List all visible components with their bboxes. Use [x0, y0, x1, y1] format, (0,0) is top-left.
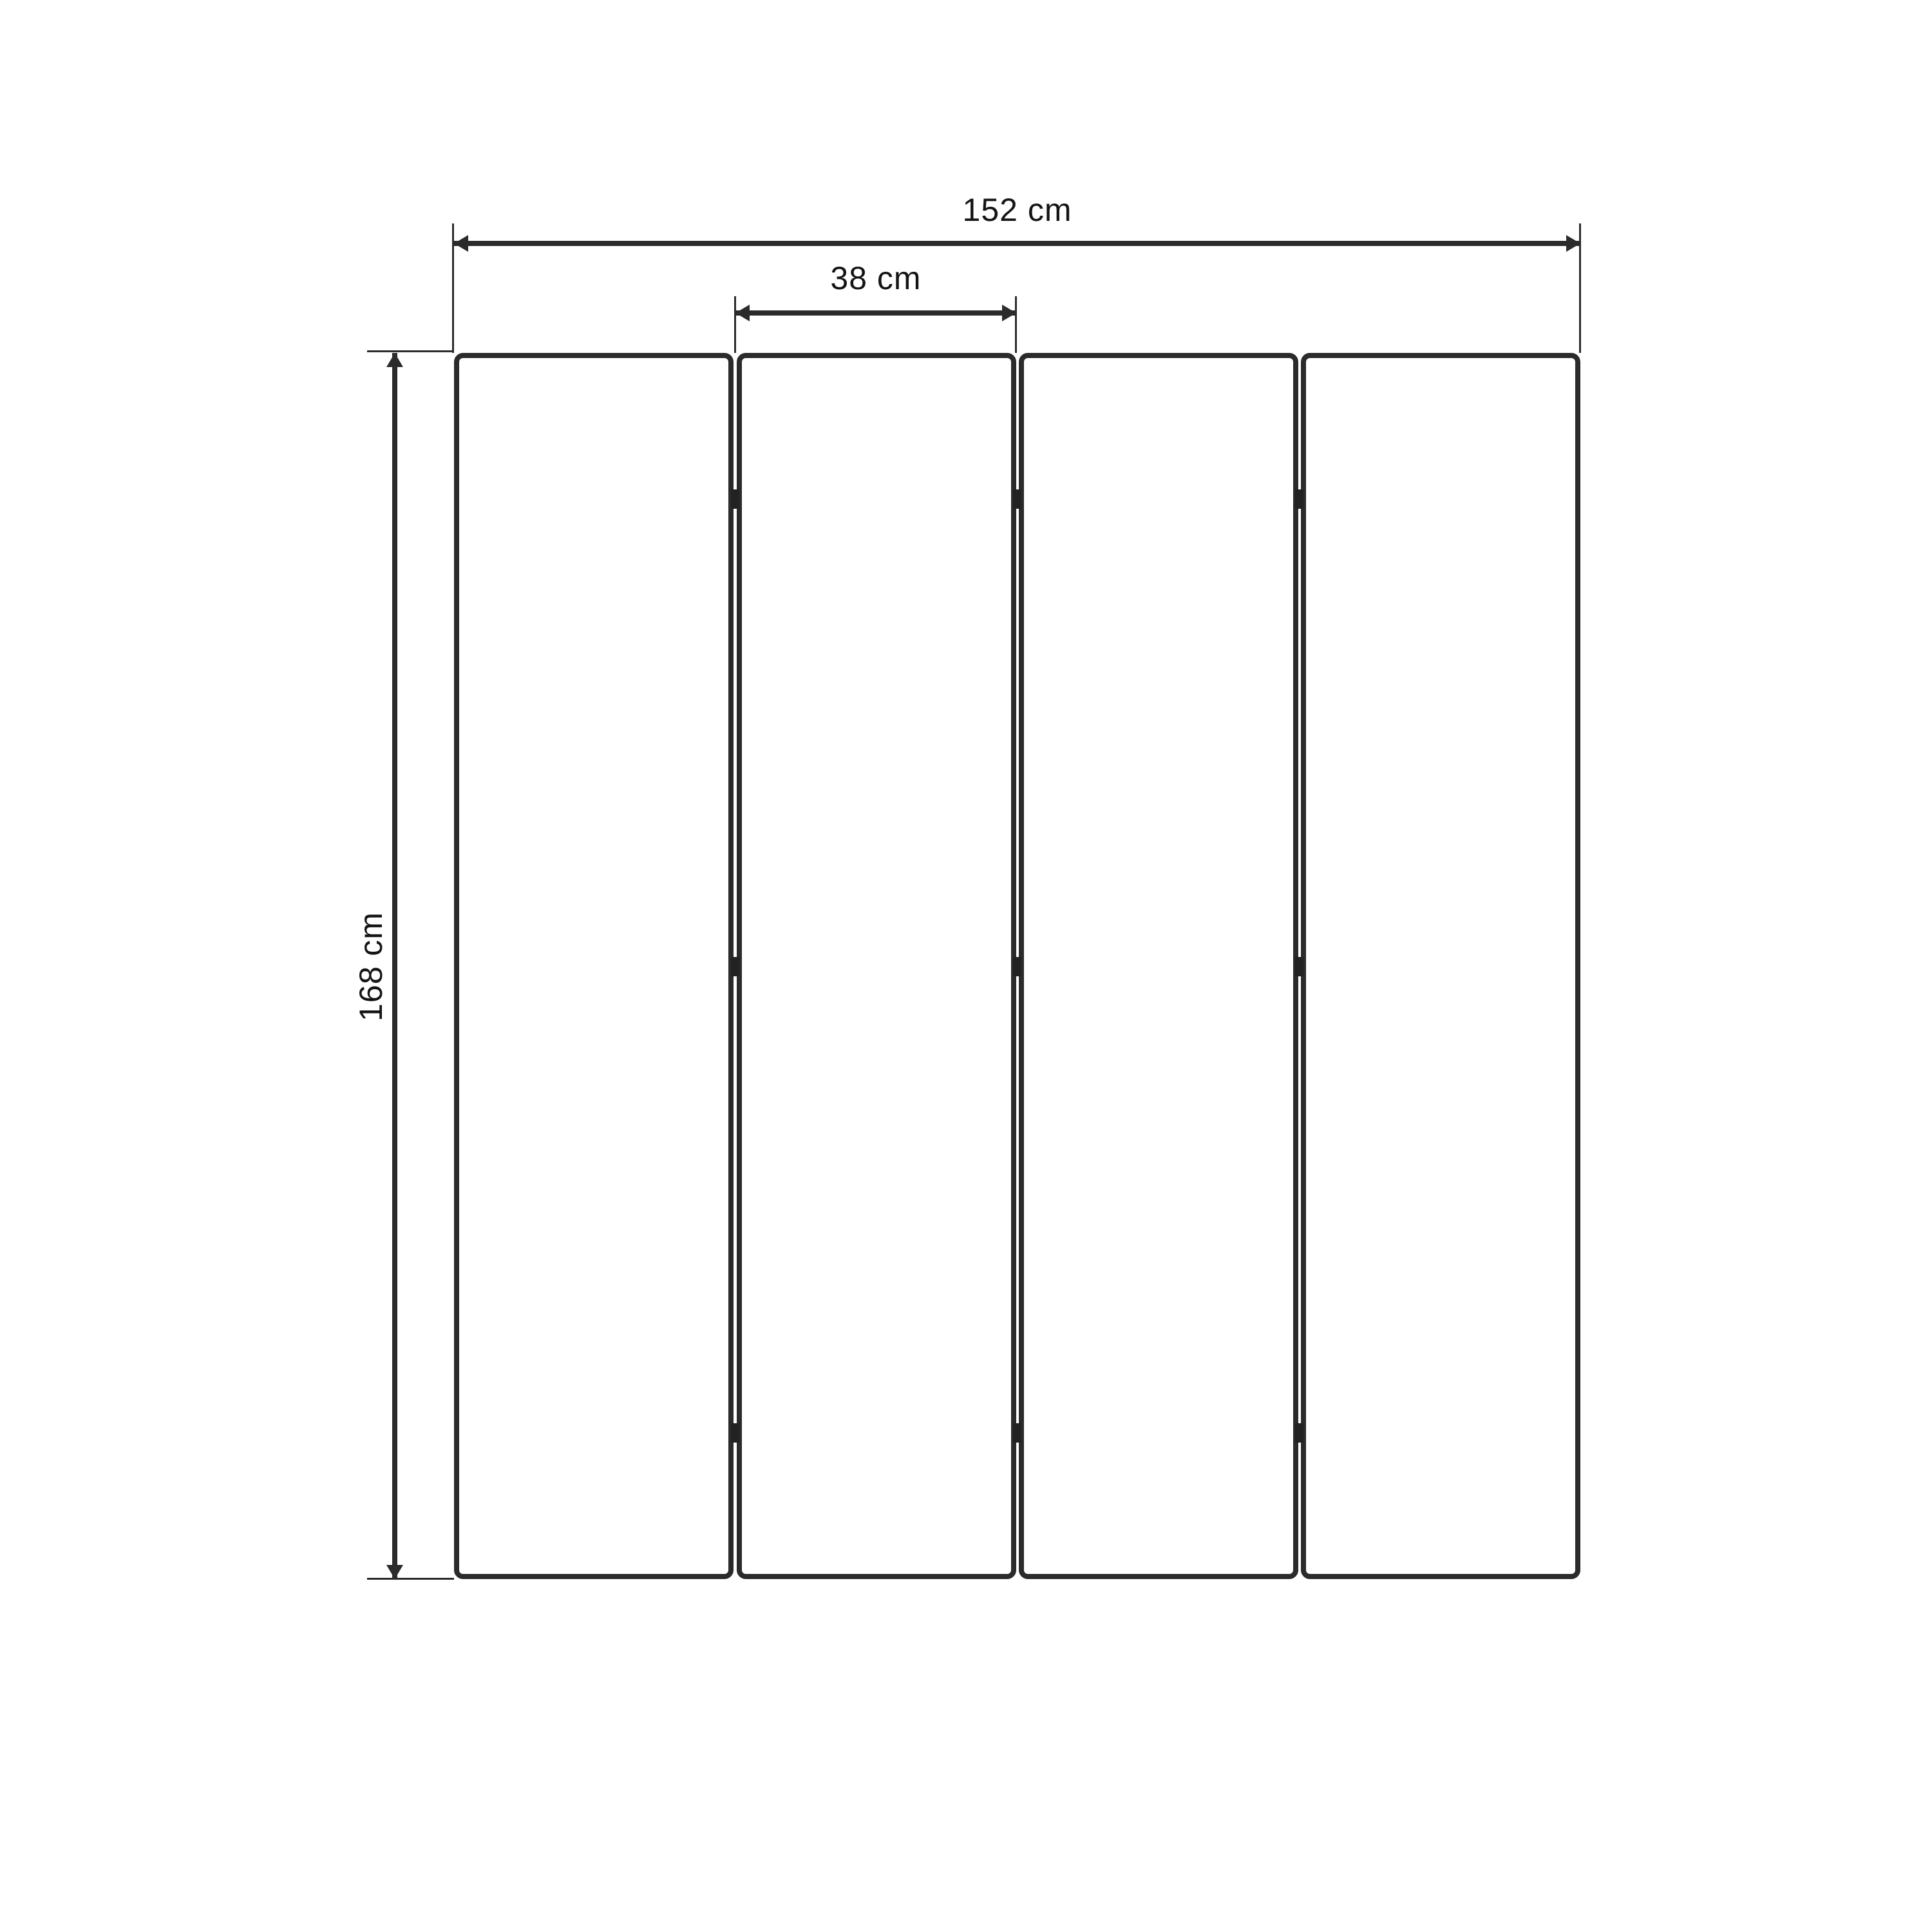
total-width-label: 152 cm — [454, 193, 1580, 227]
hinge-icon — [1295, 1423, 1303, 1443]
dimension-line-total-width — [454, 241, 1580, 246]
hinge-icon — [1013, 957, 1021, 976]
hinge-icon — [731, 957, 739, 976]
arrowhead-right-icon — [1566, 235, 1580, 252]
screen-panel-1 — [454, 353, 734, 1579]
screen-panel-3 — [1019, 353, 1298, 1579]
height-label: 168 cm — [354, 870, 388, 1063]
screen-panel-4 — [1301, 353, 1580, 1579]
hinge-icon — [731, 1423, 739, 1443]
extension-line-height-bottom — [367, 1578, 454, 1580]
hinge-icon — [1295, 489, 1303, 509]
hinge-icon — [1013, 1423, 1021, 1443]
hinge-icon — [731, 489, 739, 509]
arrowhead-left-icon — [735, 305, 750, 321]
arrowhead-down-icon — [386, 1565, 403, 1579]
arrowhead-left-icon — [454, 235, 468, 252]
panel-width-label: 38 cm — [735, 261, 1016, 295]
hinge-icon — [1295, 957, 1303, 976]
hinge-icon — [1013, 489, 1021, 509]
arrowhead-right-icon — [1002, 305, 1016, 321]
technical-drawing-canvas: 152 cm 38 cm 168 cm — [0, 0, 1932, 1932]
arrowhead-up-icon — [386, 353, 403, 367]
extension-line-height-top — [367, 350, 454, 352]
dimension-line-panel-width — [735, 310, 1016, 316]
dimension-line-height — [392, 353, 397, 1579]
screen-panel-2 — [737, 353, 1016, 1579]
